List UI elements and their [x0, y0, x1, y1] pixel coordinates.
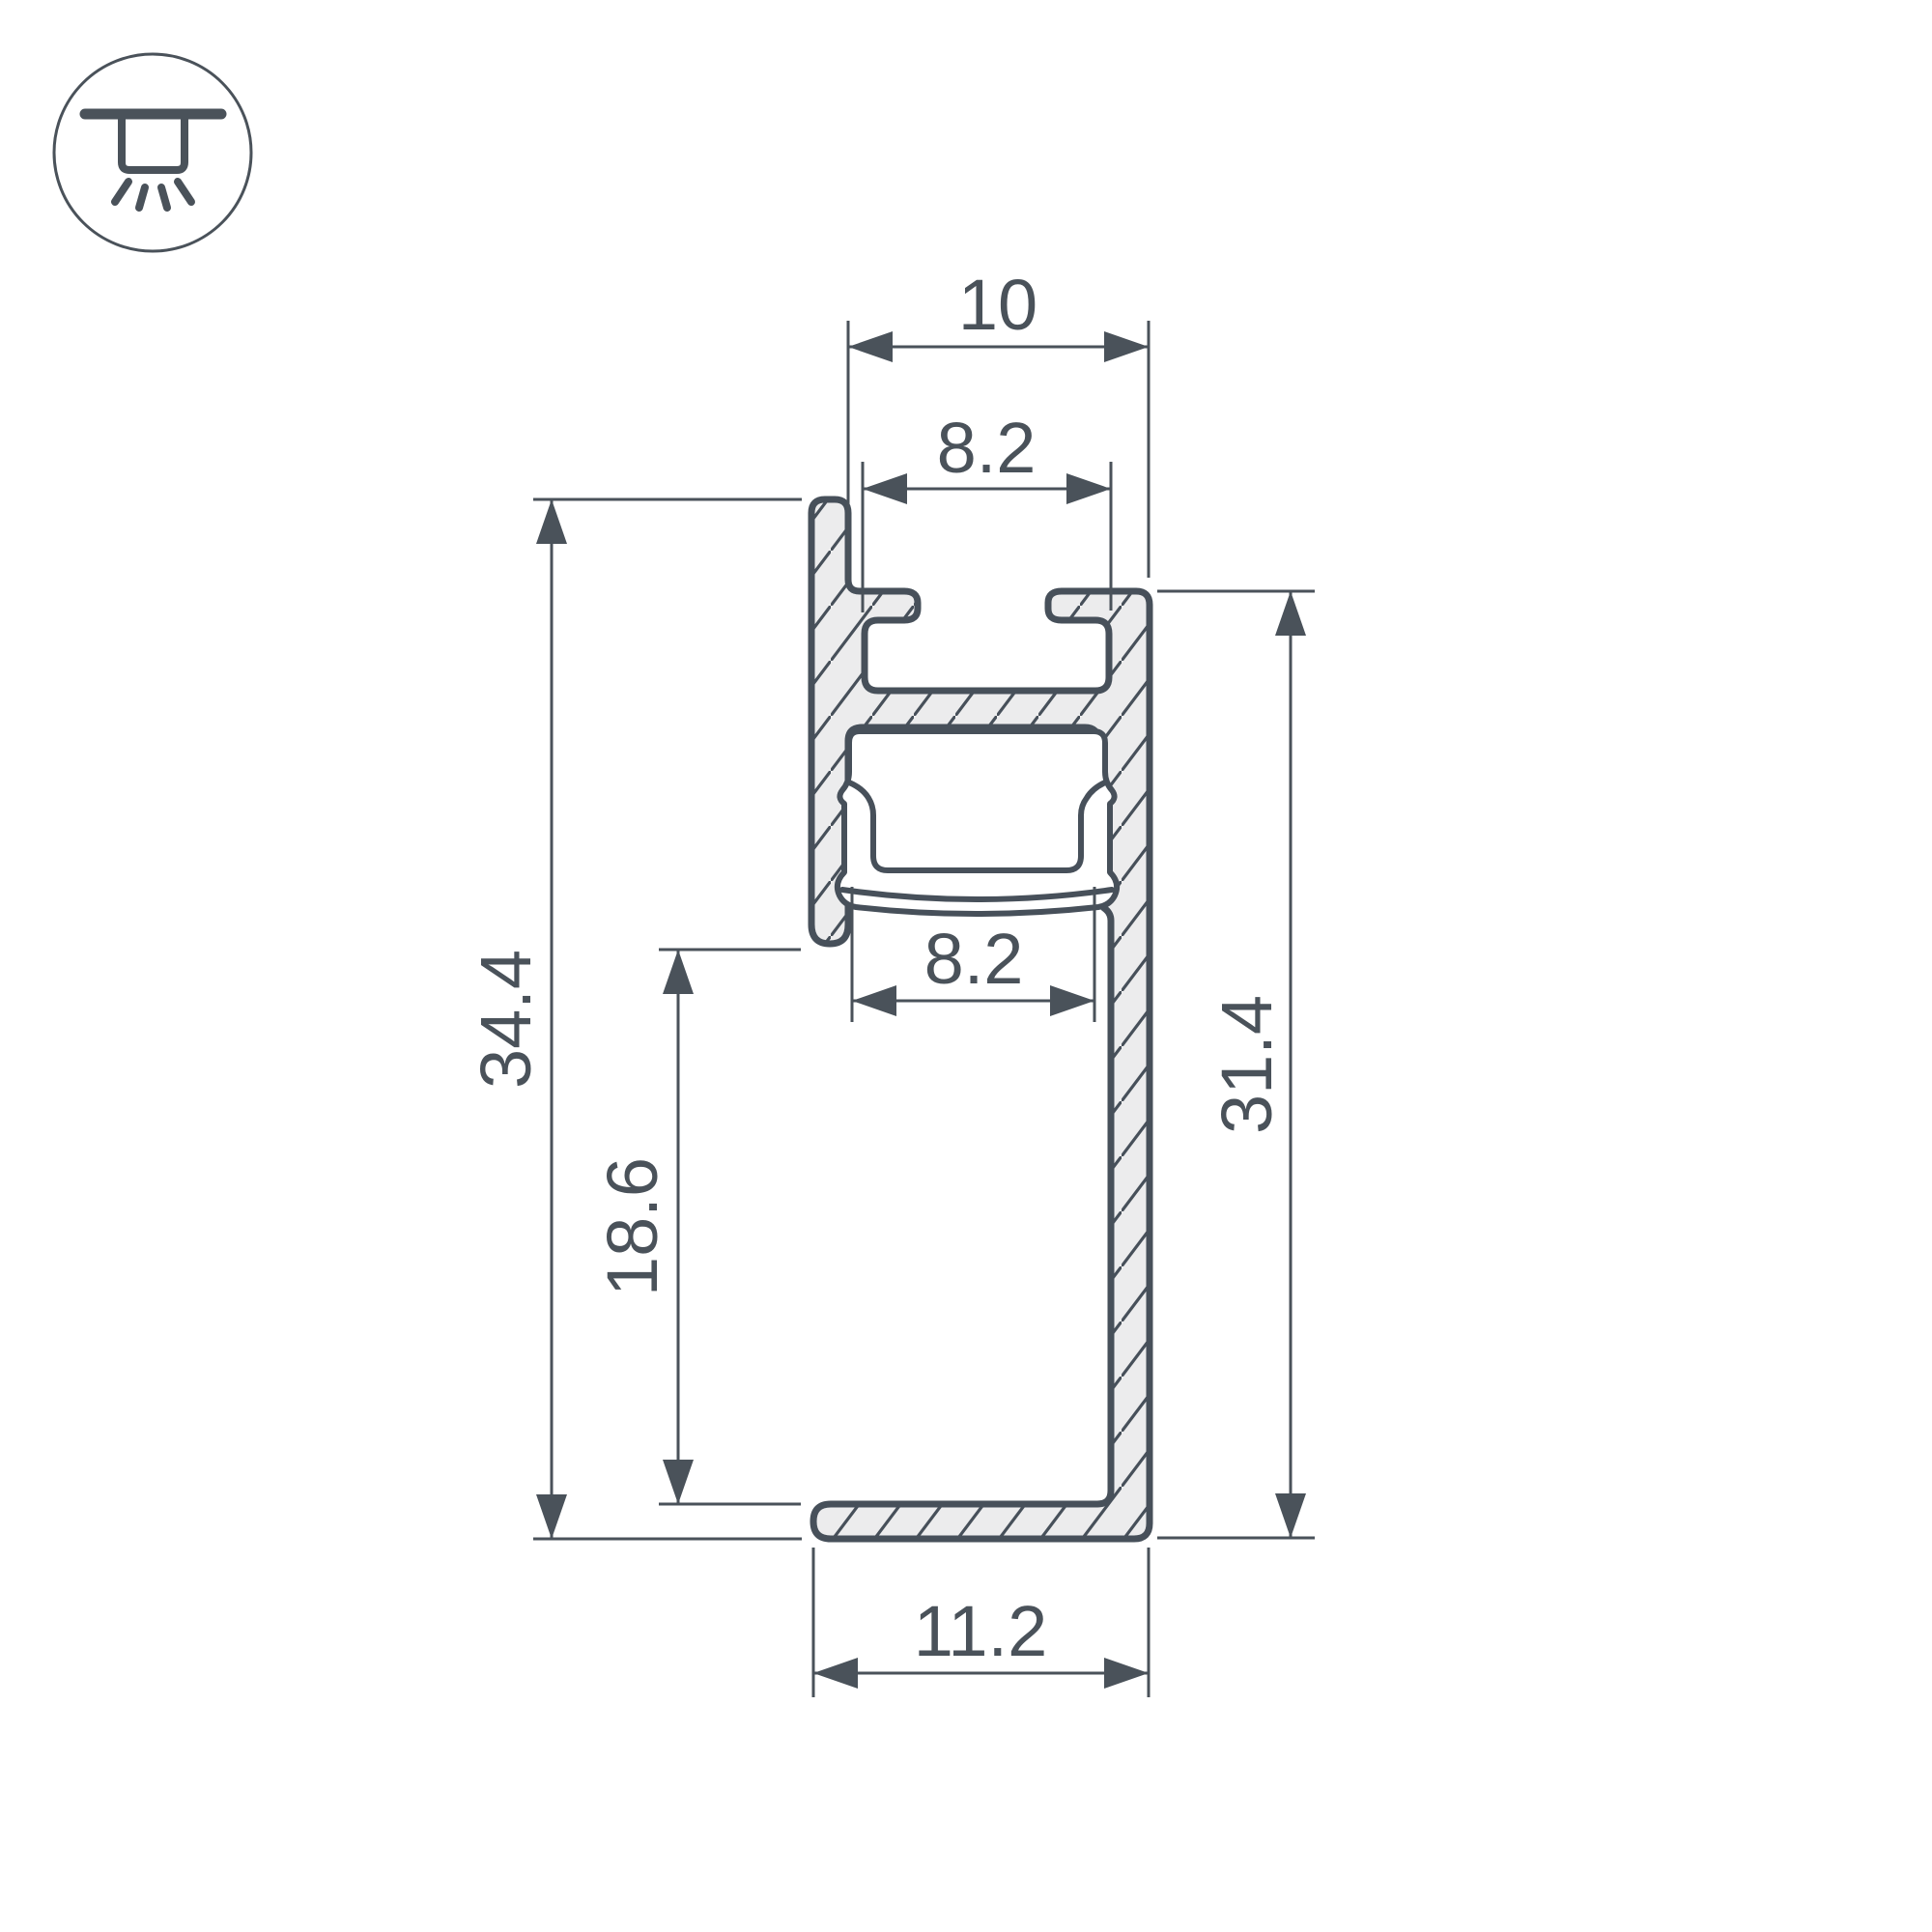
diffuser-outer-outline	[838, 731, 1117, 914]
dim-label-clearance: 18.6	[592, 1157, 672, 1296]
arrow-left	[813, 1658, 858, 1689]
led-profile-technical-drawing: 10 8.2 8.2 11.2	[0, 0, 1932, 1932]
profile-body	[811, 499, 1150, 1539]
profile-outline	[811, 499, 1150, 1539]
arrow-left	[863, 473, 907, 504]
dim-label-top-outer-width: 10	[958, 265, 1037, 345]
dim-label-diffuser-opening: 8.2	[924, 919, 1024, 999]
dim-label-base-width: 11.2	[914, 1591, 1048, 1671]
arrow-down	[536, 1494, 567, 1539]
dim-base-width: 11.2	[813, 1548, 1149, 1697]
dimension-annotations: 10 8.2 8.2 11.2	[466, 265, 1315, 1697]
recessed-light-icon	[54, 54, 251, 251]
arrow-up	[536, 499, 567, 544]
dim-label-body-height: 31.4	[1207, 995, 1287, 1134]
arrow-right	[1066, 473, 1111, 504]
diffuser-cover	[838, 731, 1117, 914]
arrow-left	[848, 331, 893, 362]
arrow-right	[1104, 1658, 1149, 1689]
dim-label-overall-height: 34.4	[466, 950, 546, 1089]
dim-label-top-slot-width: 8.2	[937, 408, 1037, 488]
dim-wall-to-base-clearance: 18.6	[592, 950, 801, 1504]
arrow-right	[1104, 331, 1149, 362]
icon-light-rays	[115, 182, 191, 208]
arrow-down	[663, 1460, 694, 1504]
icon-circle	[54, 54, 251, 251]
dim-overall-height: 34.4	[466, 499, 802, 1539]
arrow-right	[1050, 985, 1094, 1016]
arrow-left	[852, 985, 896, 1016]
icon-fixture-box	[122, 117, 185, 170]
arrow-up	[663, 950, 694, 994]
drawing-svg: 10 8.2 8.2 11.2	[0, 0, 1932, 1932]
dim-body-height: 31.4	[1157, 591, 1315, 1538]
dim-top-slot-width: 8.2	[863, 408, 1111, 612]
arrow-up	[1275, 591, 1306, 636]
arrow-down	[1275, 1493, 1306, 1538]
